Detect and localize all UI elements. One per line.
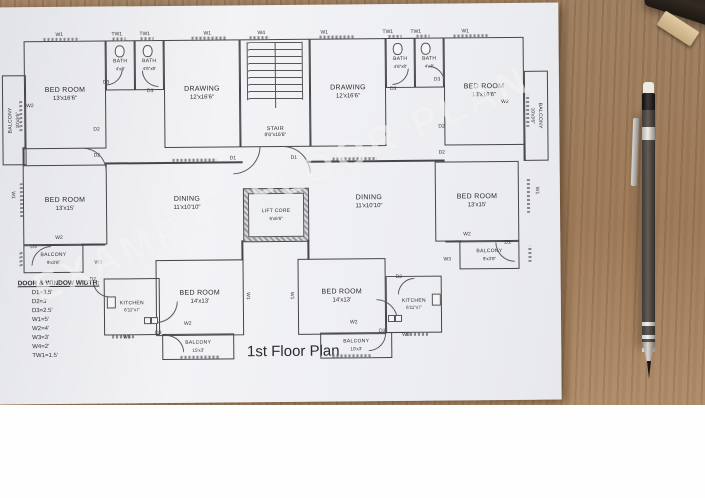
footer-band: R ROCCA BOX For detailed floor plans of … xyxy=(0,405,705,498)
kitchen-sink xyxy=(432,294,441,306)
toilet-fixture xyxy=(115,45,125,57)
wall-tag-d1: D1 xyxy=(291,156,297,161)
screenshot: BALCONY10'x3'6" BED ROOM13'x16'6" BATH4'… xyxy=(0,0,705,498)
wall-tag-d3: D3 xyxy=(390,87,396,92)
pencil-ring xyxy=(642,322,655,326)
window-marker xyxy=(19,99,22,131)
wall-segment xyxy=(22,147,24,165)
wall-tag-d3: D3 xyxy=(147,89,153,94)
mechanical-pencil xyxy=(636,82,662,384)
window-marker xyxy=(20,183,23,217)
wall-tag-w3: W3 xyxy=(443,257,451,262)
wall-tag-w1: W1 xyxy=(534,187,539,195)
pencil-body xyxy=(642,110,655,342)
wall-tag-d2: D2 xyxy=(438,125,444,130)
legend-item: TW1=1.5' xyxy=(18,352,100,362)
window-marker xyxy=(19,250,22,266)
wall-tag-d2: D2 xyxy=(93,128,99,133)
pencil-band xyxy=(642,127,655,140)
pencil-tip-cone xyxy=(642,342,655,362)
wall-tag-d1: D1 xyxy=(230,156,236,161)
wall-tag-w2: W2 xyxy=(55,236,63,241)
door-arc xyxy=(83,147,107,171)
wall-tag-d2: D2 xyxy=(439,151,445,156)
toilet-fixture xyxy=(421,43,431,55)
window-marker xyxy=(389,35,402,38)
wall-tag-d3: D3 xyxy=(434,78,440,83)
wall-tag-d3: D3 xyxy=(504,241,510,246)
window-marker xyxy=(44,38,80,41)
window-marker xyxy=(192,36,226,39)
wall-tag-w1: W1 xyxy=(289,292,294,300)
door-arc xyxy=(232,146,260,174)
room-bedroom-top-left: BED ROOM13'x16'6" xyxy=(24,41,107,150)
kitchen-burner xyxy=(388,315,395,322)
room-bedroom-mid-left: BED ROOM13'x15' xyxy=(23,164,108,245)
wall-tag-w1: W1 xyxy=(461,29,469,34)
legend-title: DOOR & WINDOW WIDTH: xyxy=(18,279,100,289)
pencil-ring xyxy=(642,335,655,339)
wall-tag-d3: D3 xyxy=(379,329,385,334)
pencil-ferrule xyxy=(642,93,655,111)
room-dining-right: DINING11'x10'10" xyxy=(325,162,414,243)
wall-segment xyxy=(445,240,461,242)
window-marker xyxy=(173,159,217,162)
room-drawing-left: DRAWING12'x16'6" xyxy=(164,39,241,148)
wall-tag-w1: W1 xyxy=(245,292,250,300)
door-window-legend: DOOR & WINDOW WIDTH: D1=3.5' D2=3' D3=2.… xyxy=(18,279,100,362)
kitchen-sink xyxy=(107,296,116,308)
wall-tag-w2: W2 xyxy=(350,320,358,325)
wall-tag-w2: W2 xyxy=(463,232,471,237)
wall-tag-d2: D2 xyxy=(94,154,100,159)
wall-tag-w3: W3 xyxy=(123,335,131,340)
toilet-fixture xyxy=(393,43,403,55)
plan-title: 1st Floor Plan xyxy=(203,342,383,361)
floor-plan-paper: BALCONY10'x3'6" BED ROOM13'x16'6" BATH4'… xyxy=(0,3,562,405)
room-drawing-right: DRAWING12'x16'6" xyxy=(310,38,387,147)
wall-tag-w3: W3 xyxy=(94,261,102,266)
room-dining-left: DINING11'x10'10" xyxy=(143,163,232,244)
window-marker xyxy=(113,37,126,40)
wall-segment xyxy=(241,240,243,260)
window-marker xyxy=(320,35,354,38)
room-stair: STAIR8'6"x16'6" xyxy=(240,39,311,148)
wall-tag-d3: D3 xyxy=(30,245,36,250)
room-lift-core: LIFT CORE6'x6'6" xyxy=(243,188,309,243)
window-marker xyxy=(526,95,529,127)
window-marker xyxy=(417,35,430,38)
wall-tag-w2: W2 xyxy=(184,322,192,327)
pencil-clip xyxy=(631,118,639,186)
wall-tag-tw1: TW1 xyxy=(410,30,421,35)
wall-segment xyxy=(81,244,105,246)
wall-tag-d3: D3 xyxy=(103,80,109,85)
wall-tag-tw1: TW1 xyxy=(382,30,393,35)
window-marker xyxy=(527,179,530,213)
wall-tag-w4: W4 xyxy=(257,31,265,36)
wall-tag-d2: D2 xyxy=(396,275,402,280)
room-bedroom-top-right: BED ROOM13'x16'6" xyxy=(444,37,525,146)
window-marker xyxy=(141,37,154,40)
kitchen-burner xyxy=(144,317,151,324)
wall-tag-w1: W1 xyxy=(56,33,64,38)
wall-tag-w3: W3 xyxy=(402,333,410,338)
toilet-fixture xyxy=(143,45,153,57)
wall-tag-w1: W1 xyxy=(320,31,328,36)
room-bedroom-bottom-left: BED ROOM14'x13' xyxy=(155,259,244,336)
wall-tag-d3: D3 xyxy=(155,331,161,336)
wall-segment xyxy=(307,240,309,260)
kitchen-burner xyxy=(395,315,402,322)
window-marker xyxy=(333,157,377,160)
wall-tag-w2: W2 xyxy=(501,100,509,105)
room-bedroom-bottom-right: BED ROOM14'x13' xyxy=(297,258,386,335)
wall-tag-w1: W1 xyxy=(10,191,15,199)
kitchen-burner xyxy=(151,317,158,324)
pencil-lead xyxy=(647,361,651,379)
wall-tag-tw1: TW1 xyxy=(112,32,123,37)
wall-tag-tw1: TW1 xyxy=(139,32,150,37)
wall-tag-w2: W2 xyxy=(26,104,34,109)
window-marker xyxy=(528,246,531,262)
window-marker xyxy=(454,34,490,37)
desk-photo: BALCONY10'x3'6" BED ROOM13'x16'6" BATH4'… xyxy=(0,0,705,405)
wall-tag-w1: W1 xyxy=(203,32,211,37)
wall-segment xyxy=(523,143,525,161)
room-bedroom-mid-right: BED ROOM13'x15' xyxy=(435,161,520,242)
window-marker xyxy=(250,36,270,39)
